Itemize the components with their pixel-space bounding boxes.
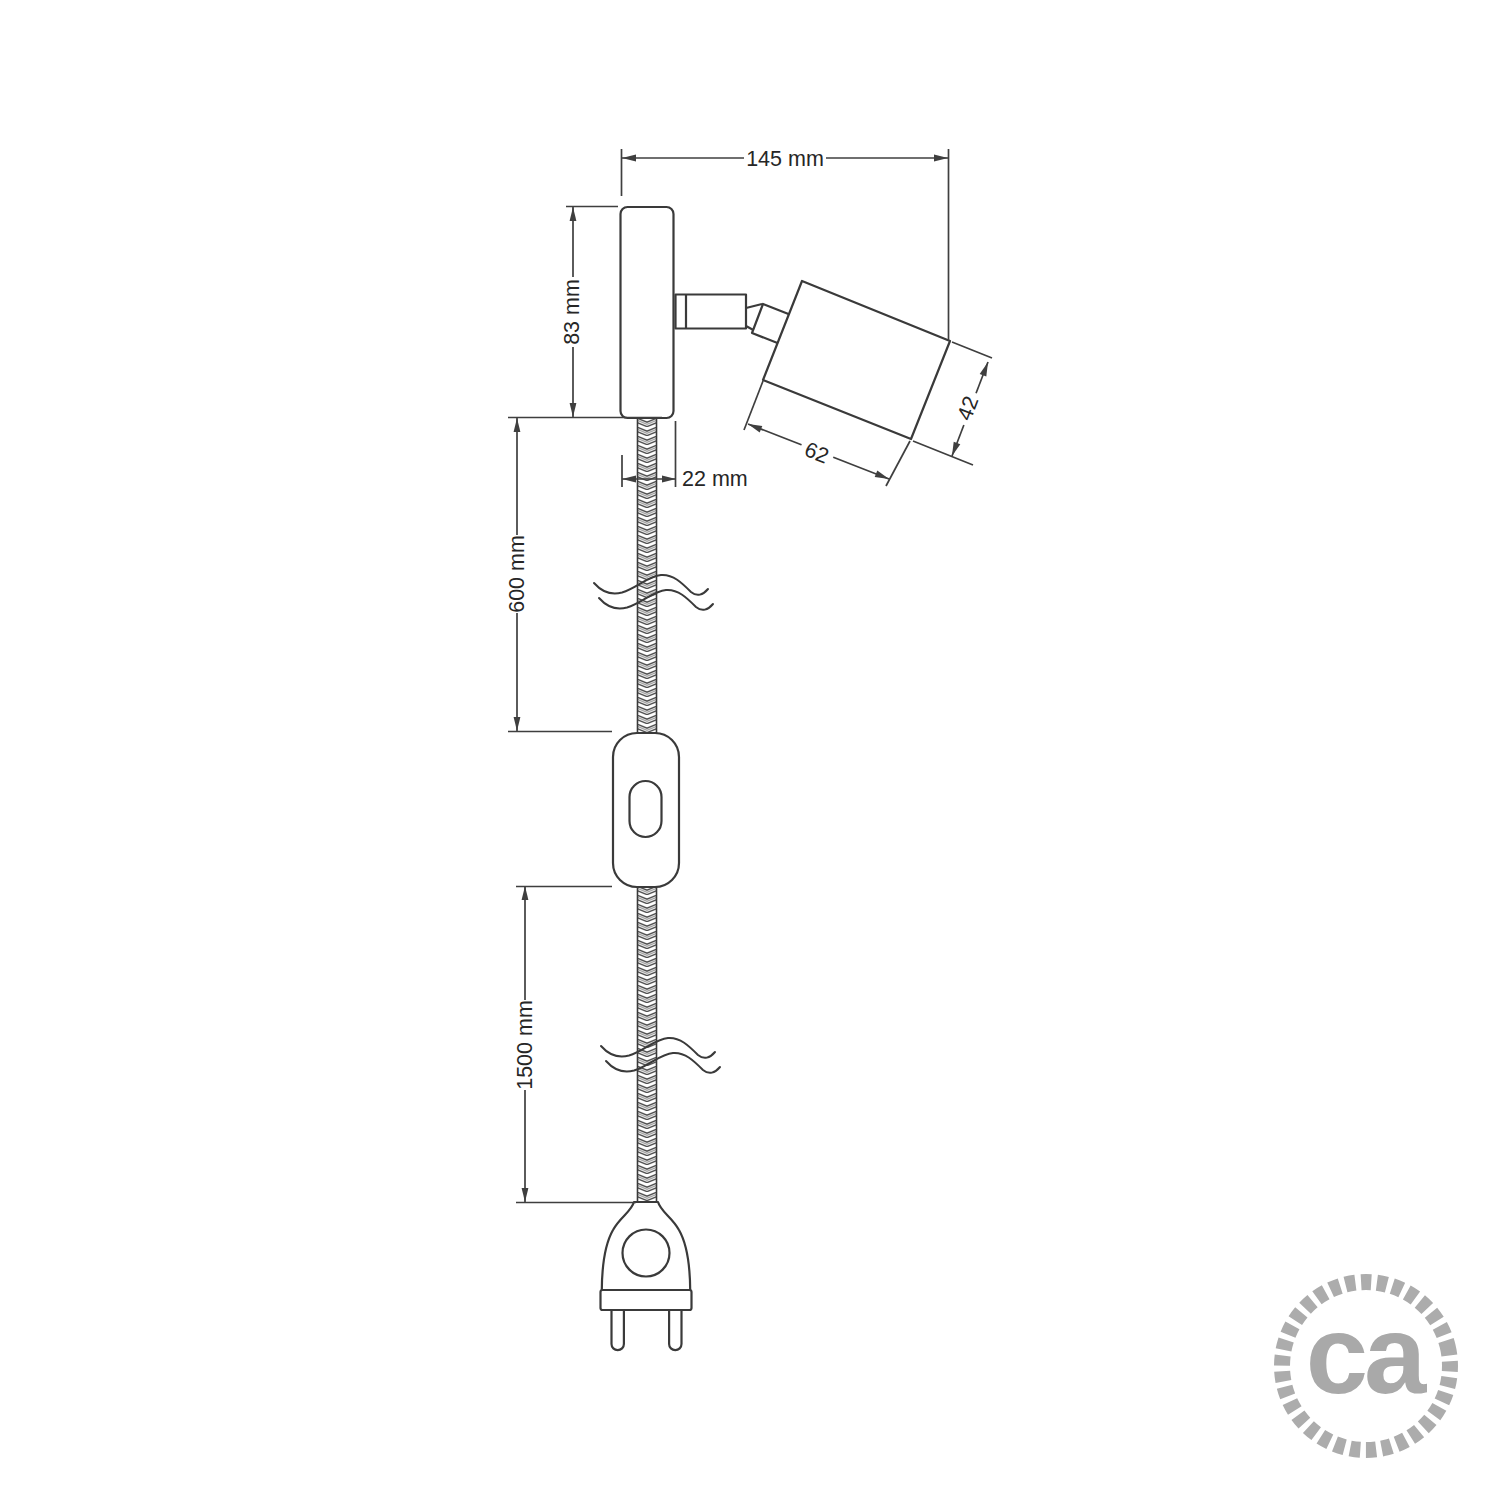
braided-cable-lower bbox=[638, 887, 657, 1202]
braided-cable-upper bbox=[638, 418, 657, 733]
plug-pin-right bbox=[669, 1310, 681, 1350]
dimension-cable-lower: 1500 mm bbox=[512, 886, 636, 1203]
dim-label-1500mm: 1500 mm bbox=[513, 1000, 537, 1090]
cable-break-symbol-lower bbox=[601, 1038, 720, 1073]
plug-pin-left bbox=[612, 1310, 624, 1350]
logo-text: ca bbox=[1306, 1292, 1427, 1417]
technical-drawing: 145 mm 83 mm 22 mm 600 mm 1500 mm bbox=[0, 0, 1500, 1500]
two-pin-plug bbox=[601, 1202, 692, 1350]
wall-mount-plate bbox=[621, 207, 674, 418]
dimension-plate-height: 83 mm bbox=[560, 207, 618, 418]
lamp-holder bbox=[763, 281, 950, 439]
inline-switch bbox=[613, 733, 679, 887]
technical-drawing-page: 145 mm 83 mm 22 mm 600 mm 1500 mm bbox=[0, 0, 1500, 1500]
swivel-joint bbox=[676, 295, 792, 345]
dim-label-145mm: 145 mm bbox=[746, 147, 824, 171]
dim-label-600mm: 600 mm bbox=[505, 535, 529, 613]
brand-logo: ca bbox=[1264, 1264, 1468, 1468]
dim-label-22mm: 22 mm bbox=[682, 467, 748, 491]
dim-label-83mm: 83 mm bbox=[560, 279, 584, 345]
plug-hole bbox=[623, 1230, 670, 1277]
plug-flange bbox=[601, 1290, 692, 1310]
